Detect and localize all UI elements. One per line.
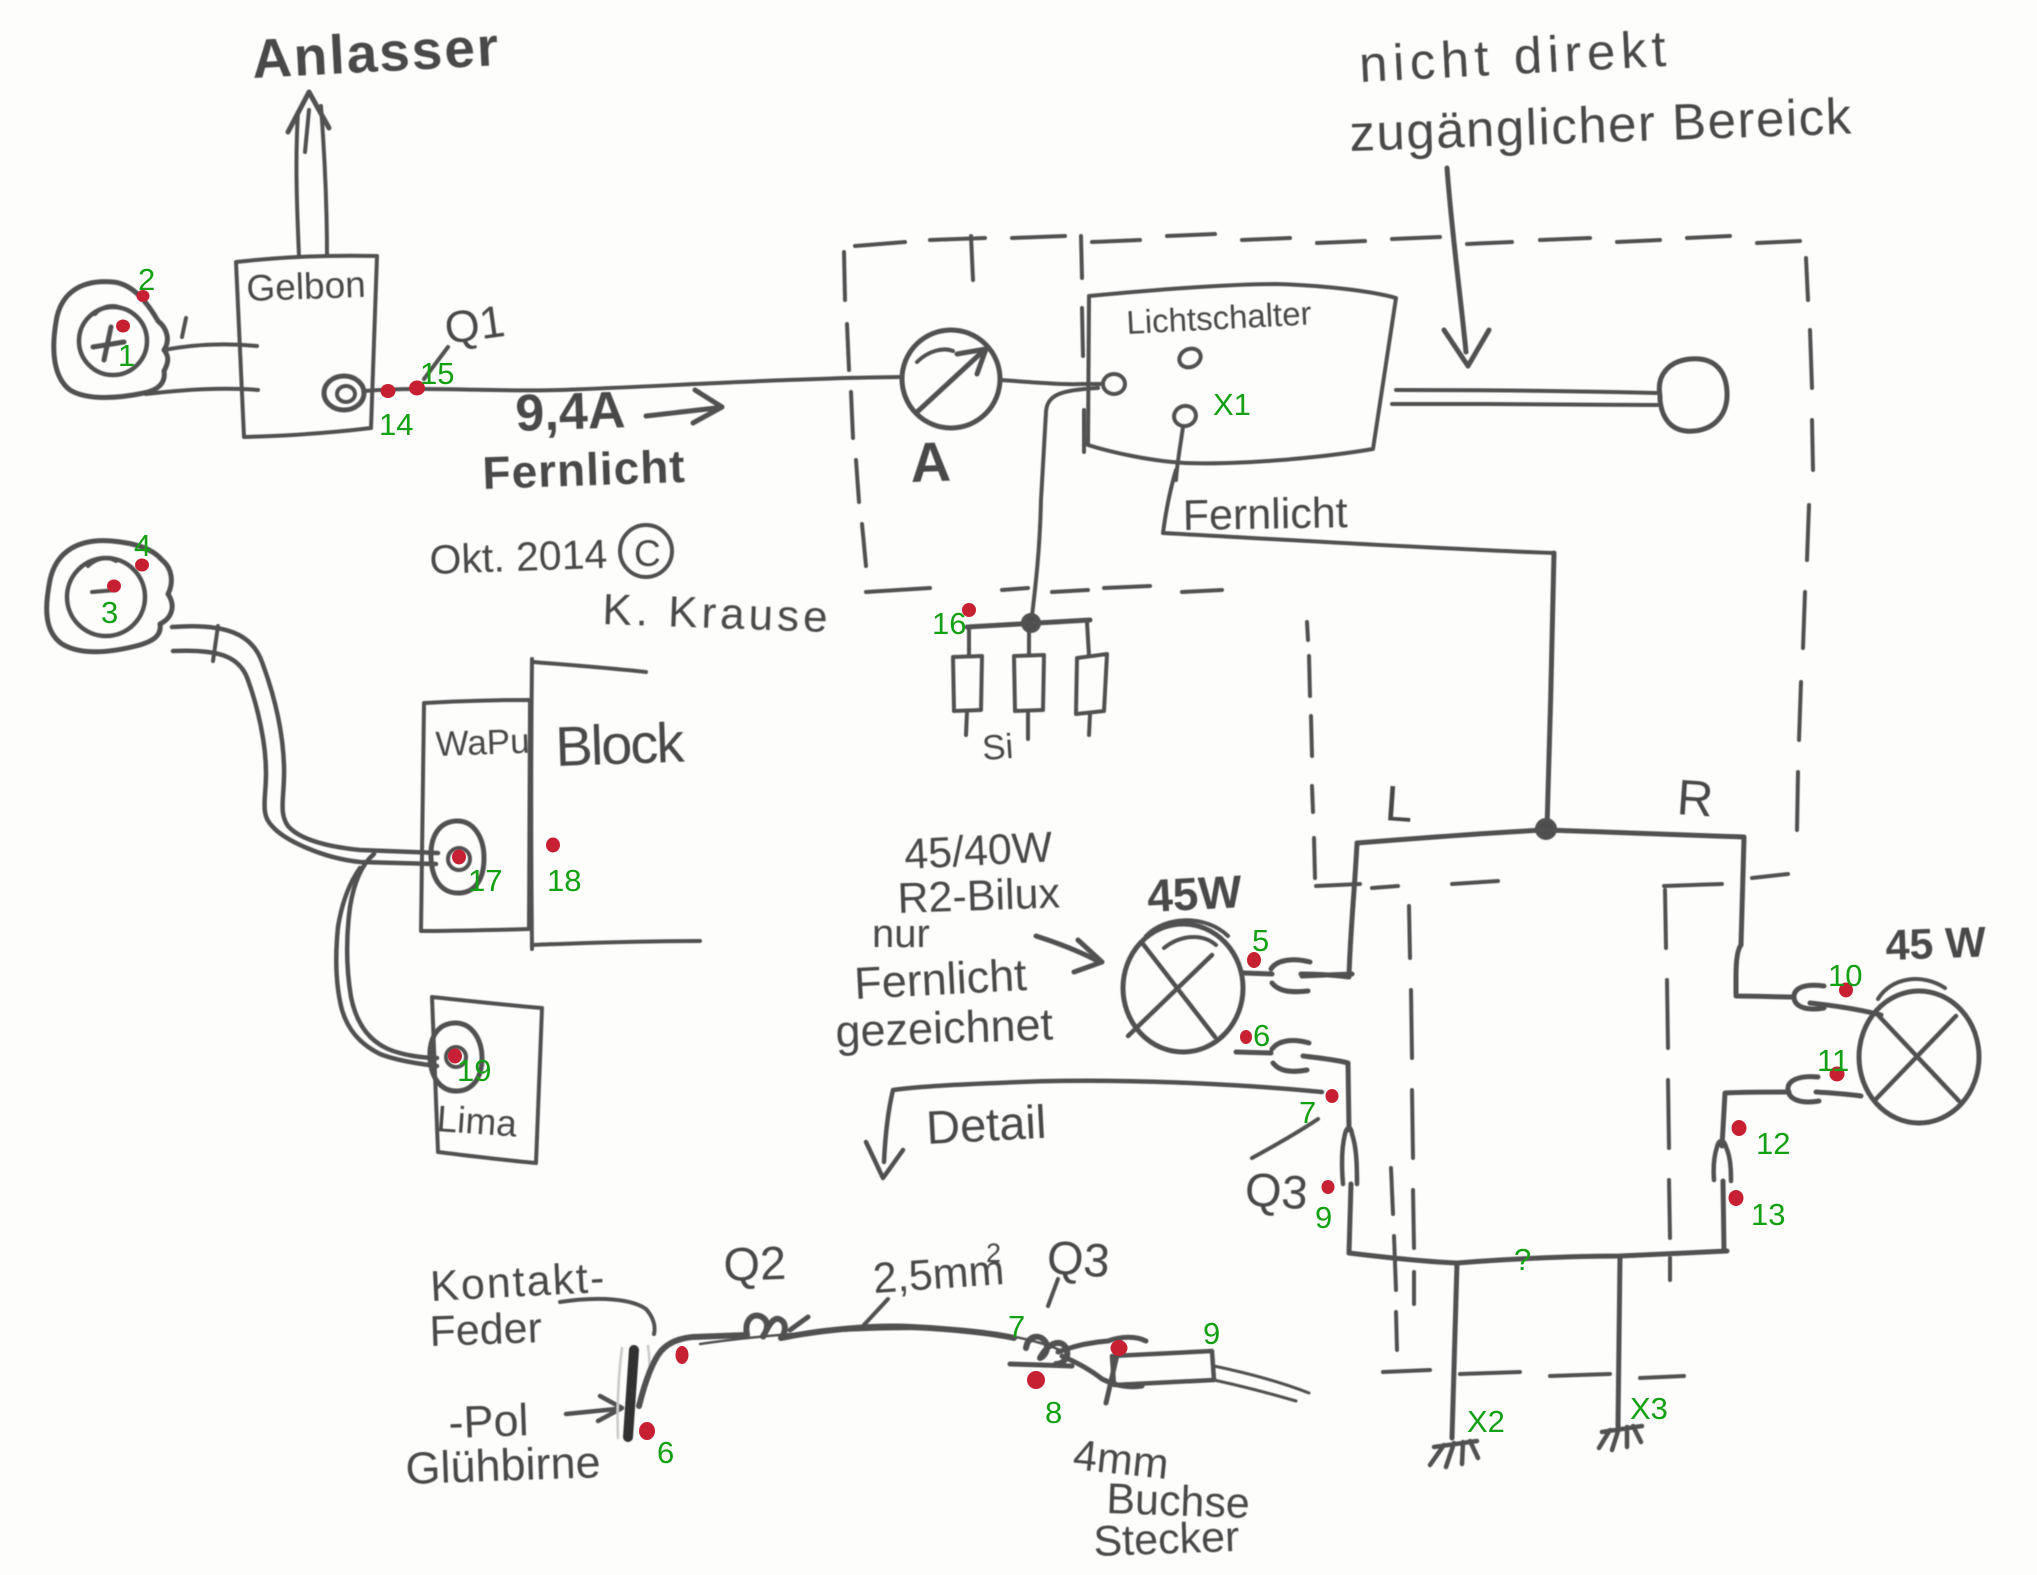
svg-text:6: 6 bbox=[657, 1435, 674, 1470]
svg-text:7: 7 bbox=[1299, 1095, 1316, 1130]
svg-text:9: 9 bbox=[1203, 1316, 1220, 1351]
svg-text:Glühbirne: Glühbirne bbox=[405, 1436, 602, 1494]
svg-text:Detail: Detail bbox=[925, 1095, 1048, 1154]
svg-text:9,4A: 9,4A bbox=[514, 381, 626, 443]
svg-text:Stecker: Stecker bbox=[1093, 1513, 1240, 1566]
svg-text:16: 16 bbox=[932, 606, 966, 641]
svg-text:2: 2 bbox=[138, 262, 155, 297]
svg-text:4: 4 bbox=[134, 528, 151, 563]
svg-text:K. Krause: K. Krause bbox=[602, 585, 833, 642]
svg-text:18: 18 bbox=[547, 863, 581, 898]
svg-text:A: A bbox=[909, 430, 952, 494]
svg-text:2: 2 bbox=[986, 1238, 1001, 1268]
svg-text:10: 10 bbox=[1828, 958, 1862, 993]
svg-text:1: 1 bbox=[118, 338, 135, 373]
svg-text:5: 5 bbox=[1252, 923, 1269, 958]
svg-text:nur: nur bbox=[872, 912, 930, 956]
svg-text:Q2: Q2 bbox=[722, 1236, 787, 1291]
svg-text:19: 19 bbox=[457, 1053, 491, 1088]
svg-text:X1: X1 bbox=[1213, 387, 1251, 422]
svg-text:X3: X3 bbox=[1630, 1391, 1668, 1426]
svg-text:11: 11 bbox=[1817, 1043, 1849, 1078]
svg-text:Fernlicht: Fernlicht bbox=[482, 440, 687, 499]
svg-text:13: 13 bbox=[1751, 1197, 1785, 1232]
svg-text:Kontakt-: Kontakt- bbox=[429, 1254, 607, 1311]
svg-text:Lima: Lima bbox=[435, 1098, 518, 1145]
svg-text:X2: X2 bbox=[1467, 1404, 1505, 1439]
svg-text:R: R bbox=[1675, 769, 1715, 827]
svg-text:3: 3 bbox=[101, 595, 118, 630]
svg-text:C: C bbox=[634, 533, 661, 574]
svg-text:15: 15 bbox=[420, 356, 454, 391]
svg-text:12: 12 bbox=[1756, 1126, 1790, 1161]
svg-text:gezeichnet: gezeichnet bbox=[835, 998, 1055, 1057]
svg-text:L: L bbox=[1383, 775, 1415, 833]
svg-text:Anlasser: Anlasser bbox=[250, 15, 501, 90]
svg-text:Fernlicht: Fernlicht bbox=[1182, 489, 1348, 540]
svg-text:6: 6 bbox=[1253, 1018, 1270, 1053]
svg-text:14: 14 bbox=[379, 407, 413, 442]
svg-text:9: 9 bbox=[1315, 1200, 1332, 1235]
svg-text:Q1: Q1 bbox=[441, 295, 508, 354]
svg-text:?: ? bbox=[1514, 1242, 1531, 1277]
svg-text:WaPu: WaPu bbox=[435, 722, 530, 764]
svg-text:17: 17 bbox=[468, 863, 502, 898]
svg-text:Q3: Q3 bbox=[1243, 1162, 1309, 1219]
svg-text:Block: Block bbox=[554, 710, 686, 777]
svg-text:Feder: Feder bbox=[429, 1304, 543, 1356]
svg-text:8: 8 bbox=[1045, 1395, 1062, 1430]
svg-text:Okt. 2014: Okt. 2014 bbox=[429, 531, 608, 583]
svg-text:45 W: 45 W bbox=[1885, 919, 1987, 970]
svg-text:7: 7 bbox=[1008, 1309, 1025, 1344]
svg-text:Q3: Q3 bbox=[1045, 1230, 1111, 1287]
svg-text:Si: Si bbox=[981, 727, 1015, 768]
svg-text:Gelbon: Gelbon bbox=[246, 264, 367, 309]
svg-text:45W: 45W bbox=[1146, 865, 1244, 922]
